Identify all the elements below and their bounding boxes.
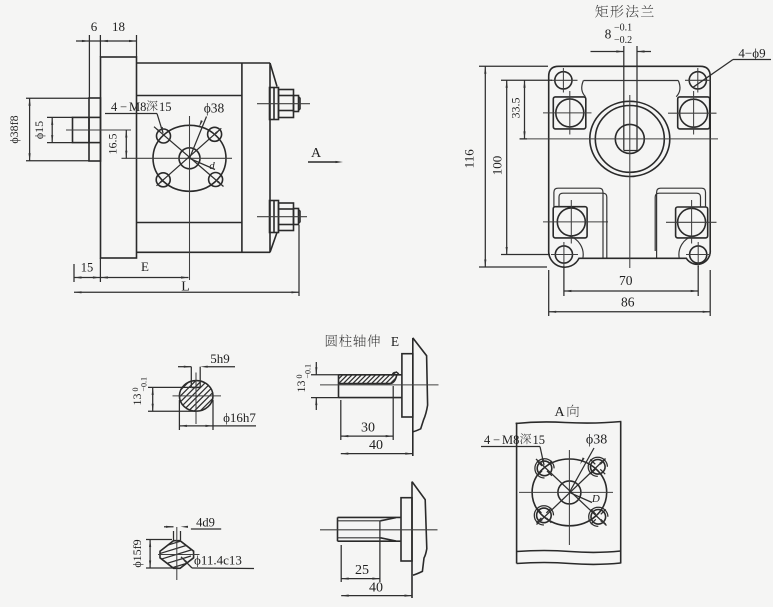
svg-text:13: 13 [130, 394, 144, 406]
svg-text:−0.1: −0.1 [614, 23, 632, 34]
svg-text:100: 100 [490, 156, 505, 176]
svg-text:ϕ38: ϕ38 [586, 433, 607, 448]
svg-text:M8: M8 [502, 433, 519, 447]
svg-text:−0.1: −0.1 [304, 364, 313, 379]
svg-text:A: A [311, 146, 322, 161]
svg-text:15: 15 [159, 100, 172, 114]
svg-text:A: A [554, 405, 565, 420]
svg-text:M8: M8 [129, 100, 146, 114]
svg-text:30: 30 [361, 421, 375, 436]
svg-text:L: L [181, 280, 190, 295]
svg-text:33.5: 33.5 [509, 98, 523, 119]
svg-text:ϕ38: ϕ38 [204, 101, 225, 116]
svg-text:16.5: 16.5 [106, 134, 120, 155]
svg-text:40: 40 [369, 581, 383, 596]
svg-text:25: 25 [355, 563, 369, 578]
svg-text:5h9: 5h9 [210, 351, 230, 366]
svg-text:4: 4 [484, 433, 491, 447]
svg-text:d: d [209, 160, 215, 172]
svg-text:E: E [391, 334, 399, 349]
svg-text:8: 8 [605, 27, 612, 42]
svg-text:D: D [591, 493, 600, 505]
svg-text:ϕ11.4c13: ϕ11.4c13 [194, 553, 242, 568]
svg-text:4−ϕ9: 4−ϕ9 [738, 46, 765, 61]
svg-text:6: 6 [91, 19, 98, 34]
svg-text:15: 15 [81, 261, 94, 275]
svg-text:ϕ15f9: ϕ15f9 [130, 539, 144, 567]
svg-text:116: 116 [462, 149, 477, 169]
svg-text:−0.2: −0.2 [614, 35, 632, 46]
svg-text:−0.1: −0.1 [140, 377, 149, 392]
svg-text:13: 13 [294, 381, 308, 393]
svg-text:−: − [493, 433, 500, 447]
svg-text:86: 86 [621, 295, 635, 310]
svg-text:70: 70 [619, 273, 633, 288]
svg-text:4: 4 [111, 100, 118, 114]
svg-text:15: 15 [533, 433, 546, 447]
svg-text:ϕ15: ϕ15 [32, 121, 46, 139]
svg-text:18: 18 [112, 19, 125, 34]
svg-text:4d9: 4d9 [196, 516, 215, 530]
svg-text:ϕ16h7: ϕ16h7 [223, 410, 256, 425]
svg-text:−: − [120, 100, 127, 114]
svg-text:ϕ38f8: ϕ38f8 [7, 115, 21, 143]
svg-text:E: E [141, 259, 149, 274]
svg-text:40: 40 [369, 438, 383, 453]
